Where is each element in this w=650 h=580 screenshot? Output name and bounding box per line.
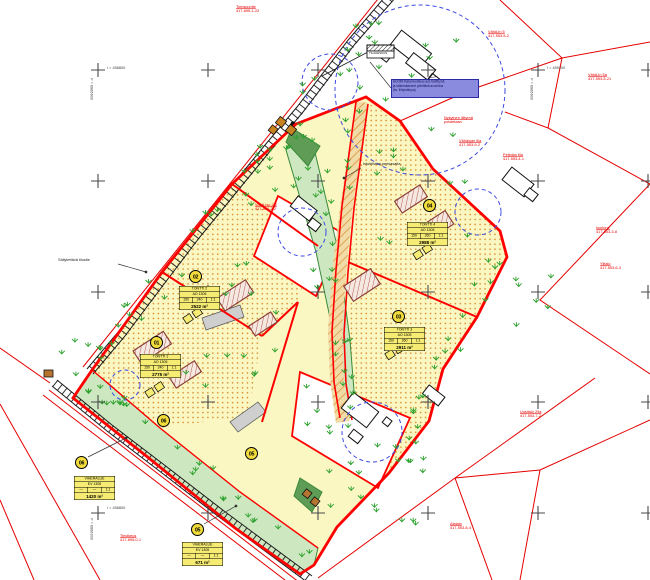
parcel-number-03: 03 (392, 310, 405, 323)
property-label: Vähä-In 5417-553-5-2 (488, 30, 526, 47)
parcel-table-03: TONTTI 3AO 1305 1502601:1 2911 m² (384, 327, 466, 375)
annotation-label: Säilytettävä tilustie (58, 258, 116, 266)
farmstead-label: TILAKESKUS (369, 52, 412, 59)
property-label: Nykyinen liittymäpoistetaan (444, 116, 497, 133)
property-label: Uusitalo 29a417-553-7-2 (520, 410, 559, 427)
parcel-number-01: 01 (150, 336, 163, 349)
grid-coordinate-label: I = 458800 (107, 66, 140, 74)
parcel-number-05-callout: 05 (191, 523, 204, 536)
property-label: Vähä-Iso 2:2417-553-2-2 (255, 203, 295, 220)
note-text: HUOM! Rakennettava uusi tieliittymä ja n… (392, 80, 479, 93)
parcel-number-06: 06 (157, 414, 170, 427)
parcel-table-02: TONTTI 2AO 1305 1502401:1 2522 m² (179, 286, 261, 334)
property-label: Alatalo417-553-8-4 (450, 522, 488, 539)
parcel-number-02: 02 (189, 270, 202, 283)
property-label: Tieoikeus417-895-0-1 (120, 534, 158, 551)
parcel-number-05: 05 (245, 447, 258, 460)
grid-coordinate-label: P = 6866600 (533, 78, 573, 85)
annotation-label: Istutettava pensasaita (363, 162, 431, 170)
grid-coordinate-label: P = 6866600 (93, 78, 133, 85)
property-label: Vähä-In 5a417-553-5-21 (588, 73, 630, 90)
site-plan-sheet: HUOM! Rakennettava uusi tieliittymä ja n… (0, 0, 650, 580)
property-label: Tiensuuntie417-895-1-22 (236, 5, 278, 22)
parcel-table-01: TONTTI 1AO 1305 1502401:1 2775 m² (140, 354, 222, 402)
property-label: Peltolan tila417-553-4-1 (503, 153, 541, 170)
parcel-table-06: VIHERALUEEV 1305 ——1:1 1420 m² (74, 476, 156, 524)
note-box: HUOM! Rakennettava uusi tieliittymä ja n… (391, 79, 479, 98)
parcel-number-04: 04 (423, 199, 436, 212)
property-label: Isorinne417-553-3-8 (596, 226, 634, 243)
parcel-table-05: VIHERALUEEV 1305 ——1:1 671 m² (182, 542, 264, 580)
property-label: Vähäojan tila417-553-9-2 (459, 139, 499, 156)
parcel-table-04: TONTTI 4AO 1305 1502601:1 2988 m² (407, 222, 489, 270)
grid-coordinate-label: I = 459200 (547, 66, 580, 74)
property-label: Ylitalo417-553-6-3 (600, 262, 638, 279)
parcel-number-06-callout: 06 (75, 456, 88, 469)
